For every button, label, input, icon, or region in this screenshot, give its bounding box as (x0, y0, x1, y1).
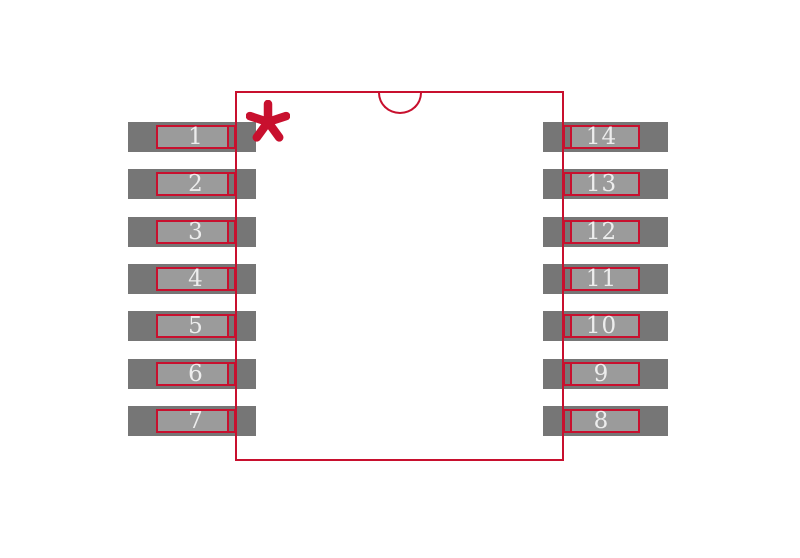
pad-pin-12: 12 (543, 217, 668, 247)
pad-pin-10: 10 (543, 311, 668, 341)
footprint-canvas: 1 2 3 4 5 6 7 (0, 0, 800, 558)
pad-gap-tab (227, 174, 234, 194)
pin-number-label: 5 (188, 316, 204, 336)
pad-outline-rect: 11 (563, 267, 640, 291)
pad-outline-rect: 5 (156, 314, 236, 338)
pad-gap-tab (565, 269, 572, 289)
orientation-notch (378, 92, 422, 114)
pad-pin-1: 1 (128, 122, 256, 152)
pad-gap-tab (227, 364, 234, 384)
pad-pin-8: 8 (543, 406, 668, 436)
pad-outline-rect: 14 (563, 125, 640, 149)
pad-gap-tab (227, 316, 234, 336)
pin1-asterisk-icon (246, 100, 290, 144)
pin-number-label: 2 (188, 174, 204, 194)
pad-outline-rect: 9 (563, 362, 640, 386)
pin-number-label: 10 (586, 316, 617, 336)
pad-gap-tab (227, 269, 234, 289)
pad-pin-6: 6 (128, 359, 256, 389)
pad-gap-tab (565, 222, 572, 242)
pad-pin-3: 3 (128, 217, 256, 247)
pin-number-label: 9 (594, 364, 610, 384)
pin-number-label: 7 (188, 411, 204, 431)
pin-number-label: 6 (188, 364, 204, 384)
pin-number-label: 4 (188, 269, 204, 289)
pad-gap-tab (565, 411, 572, 431)
pad-gap-tab (565, 127, 572, 147)
pad-gap-tab (227, 411, 234, 431)
pad-outline-rect: 6 (156, 362, 236, 386)
pin-number-label: 3 (188, 222, 204, 242)
pad-pin-14: 14 (543, 122, 668, 152)
pad-outline-rect: 2 (156, 172, 236, 196)
pin-number-label: 1 (188, 127, 204, 147)
pad-gap-tab (565, 316, 572, 336)
pad-outline-rect: 8 (563, 409, 640, 433)
pad-outline-rect: 4 (156, 267, 236, 291)
pad-gap-tab (565, 364, 572, 384)
pad-gap-tab (565, 174, 572, 194)
pad-outline-rect: 3 (156, 220, 236, 244)
pad-gap-tab (227, 222, 234, 242)
pad-outline-rect: 13 (563, 172, 640, 196)
pad-outline-rect: 10 (563, 314, 640, 338)
pad-pin-13: 13 (543, 169, 668, 199)
pad-outline-rect: 1 (156, 125, 236, 149)
pad-gap-tab (227, 127, 234, 147)
pad-pin-11: 11 (543, 264, 668, 294)
pin-number-label: 8 (594, 411, 610, 431)
pin-number-label: 12 (586, 222, 617, 242)
pad-pin-9: 9 (543, 359, 668, 389)
pad-pin-4: 4 (128, 264, 256, 294)
pad-outline-rect: 7 (156, 409, 236, 433)
pin-number-label: 13 (586, 174, 617, 194)
pin-number-label: 11 (586, 269, 617, 289)
pad-pin-7: 7 (128, 406, 256, 436)
pad-outline-rect: 12 (563, 220, 640, 244)
ic-body-outline (235, 91, 564, 461)
pin-number-label: 14 (586, 127, 617, 147)
pad-pin-2: 2 (128, 169, 256, 199)
pad-pin-5: 5 (128, 311, 256, 341)
